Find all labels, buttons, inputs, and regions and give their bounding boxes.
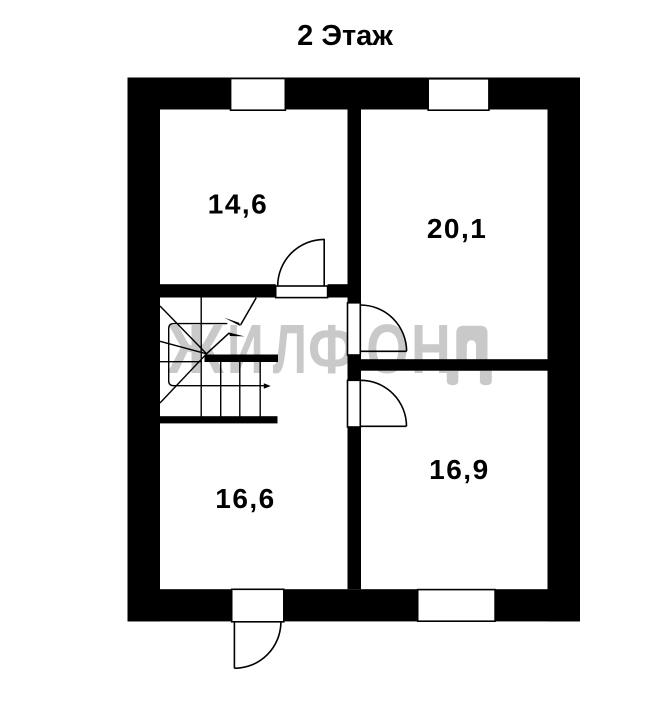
svg-text:20,1: 20,1 xyxy=(427,213,488,244)
svg-text:14,6: 14,6 xyxy=(208,189,269,220)
svg-text:Л: Л xyxy=(273,310,307,388)
svg-text:16,9: 16,9 xyxy=(429,454,490,485)
svg-text:2 Этаж: 2 Этаж xyxy=(297,20,393,52)
svg-text:16,6: 16,6 xyxy=(215,483,276,514)
svg-text:Н: Н xyxy=(411,310,451,388)
svg-text:О: О xyxy=(366,310,409,388)
